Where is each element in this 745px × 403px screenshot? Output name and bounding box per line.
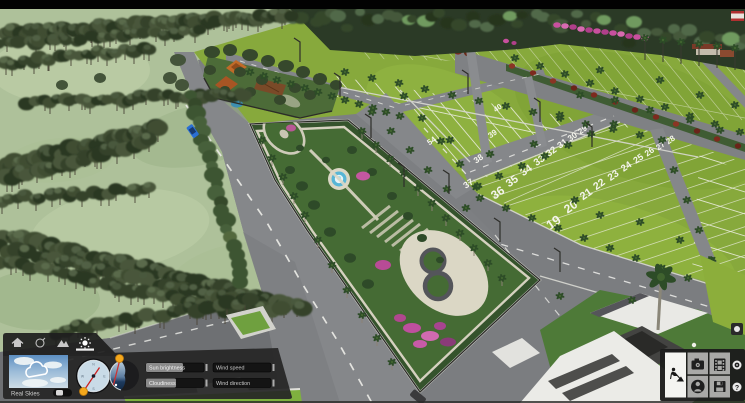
svg-text:Cloudiness: Cloudiness bbox=[149, 381, 176, 387]
svg-text:Sun brightness: Sun brightness bbox=[149, 366, 185, 372]
svg-text:Wind speed: Wind speed bbox=[216, 366, 244, 372]
svg-text:Real Skies: Real Skies bbox=[11, 392, 40, 398]
svg-text:?: ? bbox=[735, 385, 739, 392]
svg-text:Wind direction: Wind direction bbox=[216, 381, 250, 387]
